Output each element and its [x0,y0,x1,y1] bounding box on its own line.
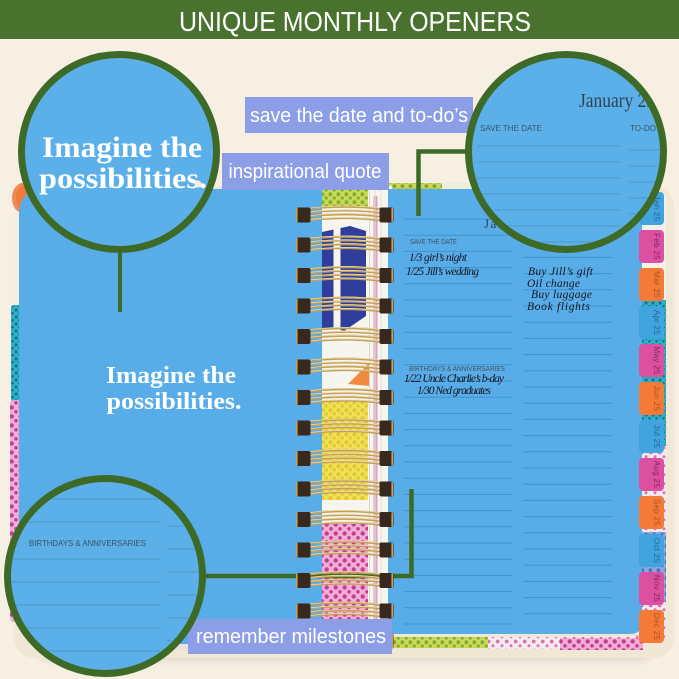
svg-text:Apr 25: Apr 25 [652,310,661,336]
svg-text:1/3 girl’s night: 1/3 girl’s night [409,252,468,264]
svg-text:Buy Jill’s gift: Buy Jill’s gift [528,266,594,278]
svg-text:BIRTHDAYS & ANNIVERSARIES: BIRTHDAYS & ANNIVERSARIES [409,364,505,373]
svg-text:1/22 Uncle Charlie’s b-day: 1/22 Uncle Charlie’s b-day [404,373,505,385]
svg-text:Jun 25: Jun 25 [652,386,661,412]
svg-text:Feb 25: Feb 25 [652,233,661,260]
svg-text:Mar 25: Mar 25 [652,271,661,298]
svg-text:inspirational quote: inspirational quote [229,161,382,183]
svg-text:TO-DO: TO-DO [630,123,656,133]
svg-text:Nov 25: Nov 25 [652,575,661,602]
svg-text:possibilities.: possibilities. [107,389,242,415]
svg-text:Aug 25: Aug 25 [652,461,661,488]
svg-text:Imagine the: Imagine the [106,363,236,389]
svg-text:Sep 25: Sep 25 [652,499,661,526]
svg-text:1/25 Jill’s wedding: 1/25 Jill’s wedding [406,266,479,278]
svg-text:SAVE THE DATE: SAVE THE DATE [410,237,457,246]
svg-text:1/30 Ned graduates: 1/30 Ned graduates [417,385,492,397]
svg-text:remember milestones: remember milestones [196,626,386,648]
svg-text:UNIQUE MONTHLY OPENERS: UNIQUE MONTHLY OPENERS [179,6,531,37]
svg-text:BIRTHDAYS & ANNIVERSARIES: BIRTHDAYS & ANNIVERSARIES [29,538,146,548]
svg-text:Jul 25: Jul 25 [652,425,661,448]
svg-text:Dec 25: Dec 25 [652,613,661,640]
svg-text:possibilities.: possibilities. [39,162,207,195]
svg-text:Imagine the: Imagine the [42,131,202,164]
svg-text:SAVE THE DATE: SAVE THE DATE [480,123,542,133]
svg-text:May 25: May 25 [652,346,661,374]
svg-text:Buy luggage: Buy luggage [531,289,592,301]
svg-text:Oct 25: Oct 25 [652,538,661,564]
svg-text:save the date and to-do’s: save the date and to-do’s [250,105,468,127]
svg-text:Book flights: Book flights [527,301,591,313]
